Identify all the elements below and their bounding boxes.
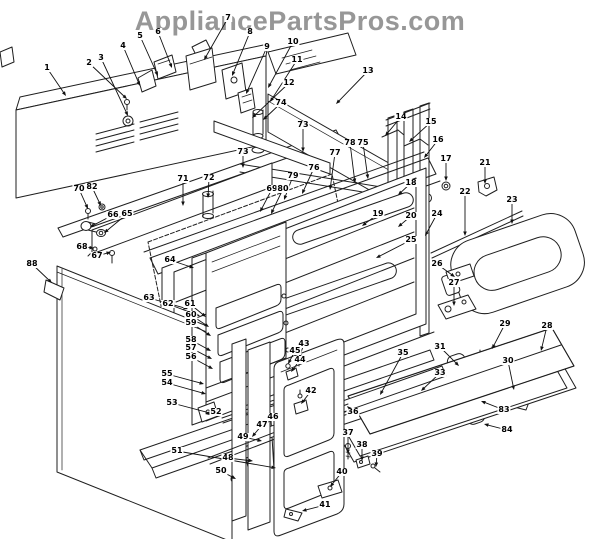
leader-arrowhead xyxy=(481,401,486,404)
leader-line xyxy=(272,189,283,212)
leader-arrowhead xyxy=(155,71,158,76)
leader-line xyxy=(381,353,403,393)
leader-line xyxy=(425,140,438,156)
leader-arrowhead xyxy=(241,164,245,169)
leader-line xyxy=(101,58,127,114)
leader-arrowhead xyxy=(199,381,204,384)
leader-arrowhead xyxy=(271,209,275,214)
leader-arrowhead xyxy=(85,204,88,209)
leader-line xyxy=(269,42,293,86)
leader-arrowhead xyxy=(206,193,210,198)
leader-arrowhead xyxy=(360,457,364,462)
leader-line xyxy=(158,32,171,66)
leader-arrowhead xyxy=(346,450,350,455)
leader-arrowhead xyxy=(301,148,305,153)
leader-arrowhead xyxy=(169,63,172,68)
leader-arrowhead xyxy=(484,423,489,426)
leader-arrowhead xyxy=(201,391,206,394)
leader-arrowhead xyxy=(97,201,101,206)
leader-line xyxy=(426,214,437,234)
leader-line xyxy=(167,374,202,383)
leader-lines-layer xyxy=(0,0,600,539)
leader-arrowhead xyxy=(208,365,213,369)
leader-arrowhead xyxy=(353,178,357,183)
leader-arrowhead xyxy=(246,89,249,94)
leader-arrowhead xyxy=(231,475,236,479)
leader-line xyxy=(261,189,272,210)
leader-arrowhead xyxy=(376,254,381,258)
leader-line xyxy=(243,437,260,441)
leader-line xyxy=(47,68,65,94)
leader-arrowhead xyxy=(492,344,496,349)
leader-arrowhead xyxy=(483,180,487,185)
leader-line xyxy=(106,214,127,232)
leader-line xyxy=(437,264,453,276)
leader-arrowhead xyxy=(232,71,235,76)
leader-line xyxy=(123,46,139,84)
leader-line xyxy=(233,32,250,74)
leader-arrowhead xyxy=(206,347,211,351)
leader-arrowhead xyxy=(540,346,544,351)
leader-line xyxy=(386,117,401,134)
parts-diagram: AppliancePartsPros.com xyxy=(0,0,600,539)
leader-line xyxy=(170,260,192,267)
leader-arrowhead xyxy=(375,462,379,467)
leader-arrowhead xyxy=(216,413,221,416)
leader-line xyxy=(79,189,87,207)
leader-line xyxy=(541,326,547,349)
leader-arrowhead xyxy=(366,174,370,179)
leader-line xyxy=(271,60,297,100)
leader-arrowhead xyxy=(268,83,272,88)
leader-line xyxy=(483,402,504,410)
leader-arrowhead xyxy=(195,313,200,316)
leader-line xyxy=(264,103,281,119)
leader-line xyxy=(364,214,378,225)
leader-arrowhead xyxy=(463,232,467,237)
leader-line xyxy=(378,240,411,257)
leader-arrowhead xyxy=(302,508,307,511)
leader-line xyxy=(285,176,293,198)
leader-line xyxy=(486,425,507,430)
leader-arrowhead xyxy=(452,302,456,307)
leader-line xyxy=(350,143,355,181)
leader-line xyxy=(172,403,219,415)
leader-arrowhead xyxy=(189,265,194,268)
leader-arrowhead xyxy=(183,306,188,309)
leader-arrowhead xyxy=(302,189,306,194)
leader-line xyxy=(253,83,289,117)
leader-arrowhead xyxy=(124,111,128,116)
leader-line xyxy=(167,383,204,393)
leader-arrowhead xyxy=(181,202,185,207)
leader-line xyxy=(304,505,325,510)
leader-arrowhead xyxy=(271,465,276,469)
leader-arrowhead xyxy=(248,459,253,463)
leader-line xyxy=(92,215,113,226)
leader-arrowhead xyxy=(329,185,333,190)
leader-arrowhead xyxy=(137,81,140,86)
leader-line xyxy=(92,187,100,204)
leader-arrowhead xyxy=(444,177,448,182)
leader-arrowhead xyxy=(204,55,208,60)
leader-line xyxy=(205,18,228,58)
leader-line xyxy=(191,340,209,350)
leader-line xyxy=(493,324,505,347)
leader-line xyxy=(140,36,157,74)
leader-arrowhead xyxy=(62,91,66,96)
leader-arrowhead xyxy=(90,223,95,227)
leader-line xyxy=(191,357,211,368)
leader-line xyxy=(508,361,514,388)
leader-arrowhead xyxy=(288,359,292,364)
leader-arrowhead xyxy=(425,231,429,236)
leader-arrowhead xyxy=(204,323,209,327)
leader-line xyxy=(337,71,368,103)
leader-line xyxy=(208,178,209,196)
leader-arrowhead xyxy=(260,207,264,212)
leader-line xyxy=(330,153,335,188)
leader-arrowhead xyxy=(207,355,212,359)
leader-arrowhead xyxy=(511,385,515,390)
leader-line xyxy=(149,298,186,308)
leader-arrowhead xyxy=(380,390,384,395)
leader-line xyxy=(168,304,198,315)
leader-line xyxy=(89,63,126,98)
leader-arrowhead xyxy=(450,273,455,277)
leader-line xyxy=(247,47,267,92)
leader-line xyxy=(32,264,51,282)
leader-arrowhead xyxy=(257,438,262,442)
leader-arrowhead xyxy=(284,195,287,200)
leader-arrowhead xyxy=(206,332,211,336)
leader-line xyxy=(303,168,314,192)
leader-arrowhead xyxy=(106,252,111,255)
leader-line xyxy=(440,347,458,365)
leader-line xyxy=(422,373,440,390)
leader-line xyxy=(363,143,368,177)
leader-arrowhead xyxy=(299,353,302,358)
leader-line xyxy=(410,122,431,141)
leader-line xyxy=(331,472,342,485)
leader-arrowhead xyxy=(89,246,94,250)
leader-arrowhead xyxy=(510,220,514,225)
leader-line xyxy=(177,451,274,468)
